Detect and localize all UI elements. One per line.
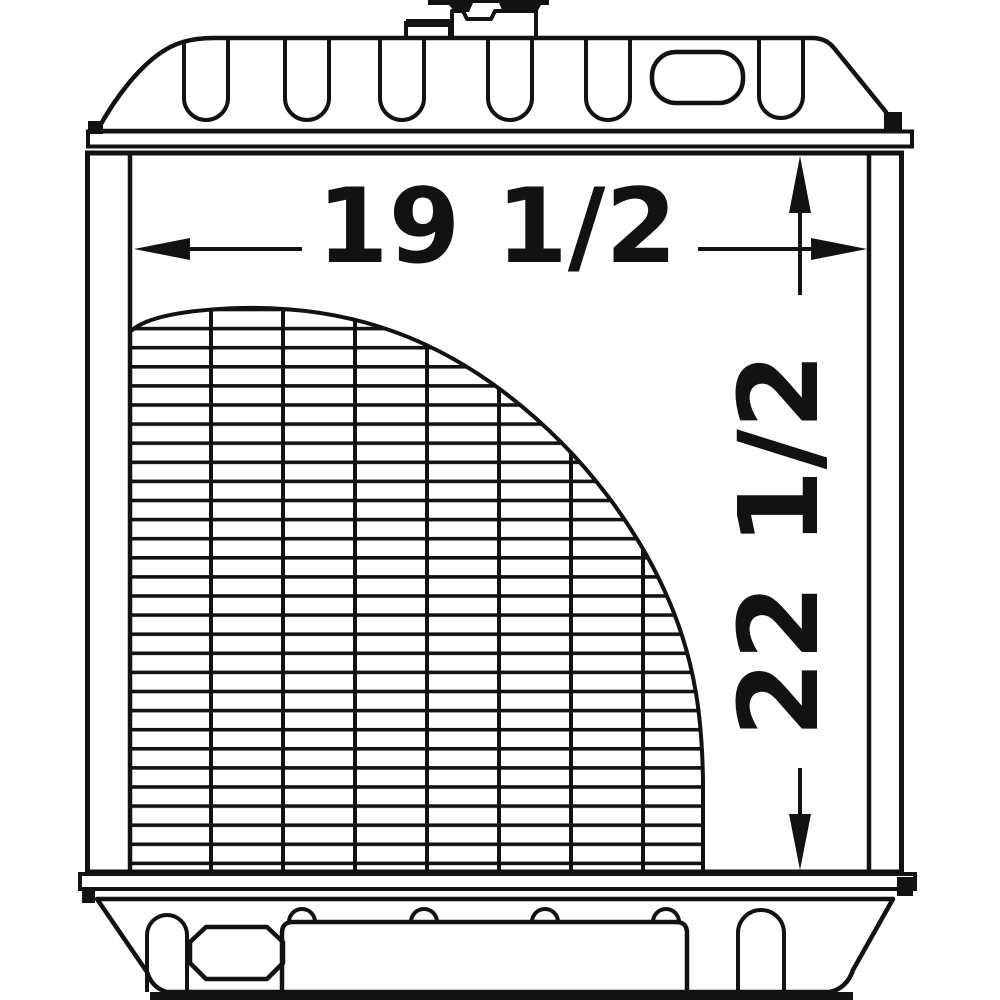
height-dimension-label: 22 1/2 [715, 353, 843, 738]
top-tank-slot [380, 40, 424, 120]
top-tank-slot [285, 40, 329, 120]
radiator-cap [428, 0, 549, 12]
bottom-flange-band [80, 874, 915, 889]
width-dim-arrow-right [811, 238, 867, 260]
drawing-svg: 19 1/2 22 1/2 [0, 0, 1000, 1000]
bottom-flange-right-cap [897, 877, 913, 896]
radiator-technical-drawing: 19 1/2 22 1/2 [0, 0, 1000, 1000]
top-flange-band [88, 132, 912, 147]
top-tank-slot [759, 40, 803, 118]
bottom-flange-left-cap [82, 889, 95, 903]
top-tank-slot [586, 40, 630, 120]
drain-plug-boss [190, 927, 283, 979]
width-dim-arrow-left [134, 238, 190, 260]
height-dim-arrow-up [789, 156, 811, 213]
top-tank-slot [184, 40, 228, 120]
bottom-tank [97, 899, 893, 996]
top-tank-oval-opening [652, 52, 743, 103]
top-tank-slot [488, 40, 532, 120]
lower-plate [282, 922, 687, 992]
filler-neck-outline [452, 11, 536, 39]
top-tank [97, 38, 888, 131]
filler-cap-assembly [406, 0, 549, 39]
core-fin-hatch [131, 308, 703, 872]
width-dimension-label: 19 1/2 [317, 167, 677, 287]
height-dimension: 22 1/2 [715, 156, 843, 870]
height-dim-arrow-down [789, 814, 811, 870]
width-dimension: 19 1/2 [134, 167, 867, 287]
top-flange-right-cap [884, 112, 902, 133]
bottom-tank-slot-right [738, 910, 784, 992]
core-fins [131, 300, 703, 872]
top-flange-left-cap [88, 121, 103, 134]
